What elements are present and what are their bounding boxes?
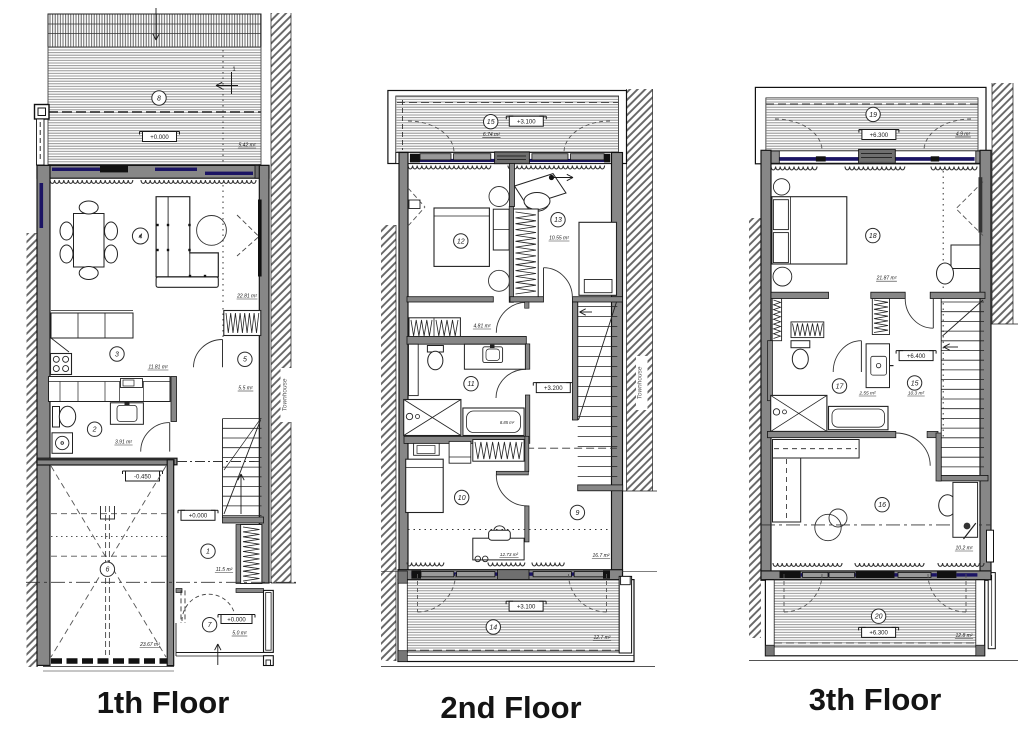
svg-text:+0.000: +0.000 — [189, 514, 208, 520]
svg-text:12.8 m²: 12.8 m² — [956, 633, 973, 639]
svg-text:2: 2 — [92, 427, 97, 434]
svg-text:5.0 m²: 5.0 m² — [232, 631, 247, 637]
svg-text:+0.000: +0.000 — [150, 135, 169, 141]
svg-text:8: 8 — [157, 95, 161, 102]
svg-text:4.81 m²: 4.81 m² — [474, 324, 491, 330]
svg-text:19: 19 — [869, 112, 877, 119]
svg-text:23.67 m²: 23.67 m² — [139, 642, 160, 648]
svg-text:+3.200: +3.200 — [544, 386, 563, 392]
svg-text:Townhouse: Townhouse — [637, 366, 644, 399]
svg-text:+6.400: +6.400 — [907, 354, 926, 360]
svg-text:22.81 m²: 22.81 m² — [236, 294, 257, 300]
svg-text:1th Floor: 1th Floor — [97, 685, 230, 720]
svg-text:3: 3 — [115, 351, 119, 358]
svg-text:4.9 m²: 4.9 m² — [956, 132, 971, 138]
svg-text:10.55 m²: 10.55 m² — [549, 236, 569, 242]
svg-text:Townhouse: Townhouse — [282, 378, 289, 411]
svg-text:12.7 m²: 12.7 m² — [594, 635, 611, 641]
svg-text:10.3 m²: 10.3 m² — [908, 391, 925, 397]
svg-text:5: 5 — [243, 357, 247, 364]
svg-text:-0.450: -0.450 — [134, 474, 152, 480]
svg-text:15: 15 — [487, 119, 495, 126]
svg-text:11: 11 — [467, 381, 474, 388]
svg-text:10.2 m²: 10.2 m² — [956, 546, 973, 552]
svg-text:12: 12 — [457, 238, 465, 245]
svg-text:+6.300: +6.300 — [870, 133, 889, 139]
svg-text:11.5 m²: 11.5 m² — [216, 567, 233, 573]
svg-text:+3.100: +3.100 — [517, 120, 536, 126]
svg-text:+0.000: +0.000 — [227, 617, 246, 623]
svg-text:2nd Floor: 2nd Floor — [440, 690, 581, 725]
svg-text:18: 18 — [869, 233, 877, 240]
svg-text:6: 6 — [105, 567, 109, 574]
svg-text:3th Floor: 3th Floor — [809, 682, 942, 717]
svg-text:+6.300: +6.300 — [869, 631, 888, 637]
svg-text:3.91 m²: 3.91 m² — [115, 440, 132, 446]
svg-text:16: 16 — [878, 502, 886, 509]
svg-text:12.73 m²: 12.73 m² — [500, 552, 519, 557]
svg-text:8.85 m²: 8.85 m² — [500, 420, 515, 425]
svg-text:5.5 m²: 5.5 m² — [238, 386, 253, 392]
svg-text:17: 17 — [836, 383, 845, 390]
svg-text:5.42 m²: 5.42 m² — [239, 143, 256, 149]
svg-text:20: 20 — [874, 614, 883, 621]
svg-text:11.81 m²: 11.81 m² — [148, 365, 168, 371]
svg-text:9: 9 — [575, 510, 579, 517]
svg-text:6.74 m²: 6.74 m² — [483, 132, 500, 138]
svg-text:21.87 m²: 21.87 m² — [876, 276, 897, 282]
svg-text:1: 1 — [206, 549, 210, 556]
svg-text:2.55 m²: 2.55 m² — [858, 391, 876, 397]
svg-text:13: 13 — [554, 217, 562, 224]
svg-text:10: 10 — [458, 495, 466, 502]
svg-text:+3.100: +3.100 — [517, 605, 536, 611]
svg-text:14: 14 — [489, 624, 497, 631]
svg-text:16.7 m²: 16.7 m² — [593, 553, 610, 559]
svg-text:15: 15 — [911, 380, 919, 387]
